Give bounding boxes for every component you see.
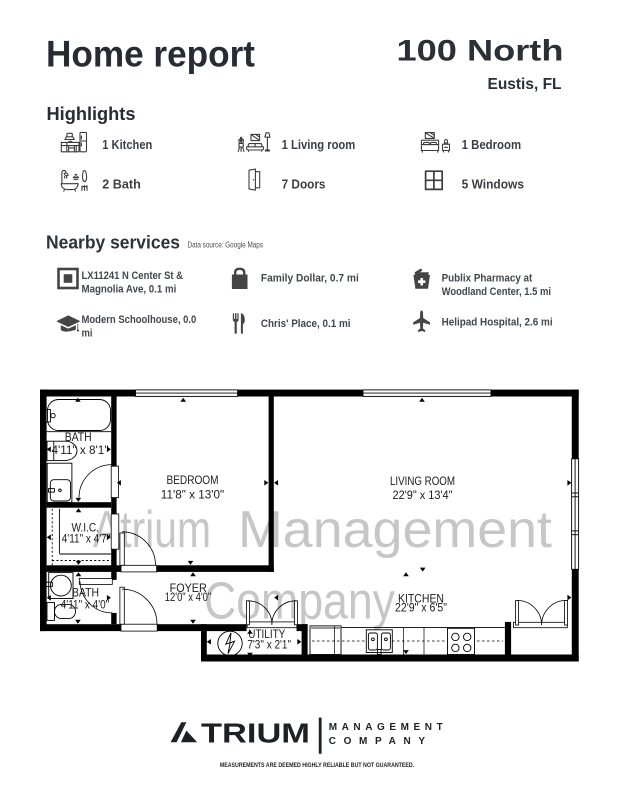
svg-text:4'11" x 8'1": 4'11" x 8'1" [52,445,109,457]
svg-text:2 Bath: 2 Bath [102,176,141,191]
svg-text:Home report: Home report [46,34,255,75]
svg-text:Chris' Place, 0.1 mi: Chris' Place, 0.1 mi [261,318,351,330]
svg-text:Company: Company [204,572,395,630]
svg-text:Nearby services: Nearby services [46,233,180,253]
svg-text:Helipad Hospital, 2.6 mi: Helipad Hospital, 2.6 mi [442,316,553,328]
svg-text:Magnolia Ave, 0.1 mi: Magnolia Ave, 0.1 mi [82,284,177,296]
svg-text:Management: Management [238,501,553,559]
svg-text:1 Living room: 1 Living room [282,137,356,152]
svg-text:5 Windows: 5 Windows [462,176,524,191]
svg-text:11'8" x 13'0": 11'8" x 13'0" [161,490,224,502]
svg-text:mi: mi [82,328,93,340]
svg-text:Woodland Center, 1.5 mi: Woodland Center, 1.5 mi [442,286,551,298]
svg-text:BATH: BATH [65,430,92,444]
svg-text:7 Doors: 7 Doors [282,176,326,191]
svg-text:Highlights: Highlights [47,103,136,124]
svg-text:22'9" x 13'4": 22'9" x 13'4" [393,490,453,502]
svg-text:MEASUREMENTS ARE DEEMED HIGHLY: MEASUREMENTS ARE DEEMED HIGHLY RELIABLE … [220,762,414,769]
svg-text:LX11241 N Center St &: LX11241 N Center St & [82,270,184,282]
svg-text:Modern Schoolhouse, 0.0: Modern Schoolhouse, 0.0 [82,314,197,326]
svg-text:4'11" x 4'0": 4'11" x 4'0" [61,600,110,612]
svg-text:LIVING ROOM: LIVING ROOM [390,474,455,488]
svg-text:Publix Pharmacy at: Publix Pharmacy at [442,272,533,284]
svg-text:100 North: 100 North [397,35,564,68]
svg-text:7'3" x 2'1": 7'3" x 2'1" [247,639,291,651]
svg-text:Family Dollar, 0.7 mi: Family Dollar, 0.7 mi [261,273,359,285]
svg-text:BEDROOM: BEDROOM [167,473,219,487]
svg-text:BATH: BATH [72,586,99,600]
svg-text:4'11" x 4'7": 4'11" x 4'7" [62,533,111,545]
svg-text:W.I.C.: W.I.C. [71,520,99,534]
svg-text:22'9" x 6'5": 22'9" x 6'5" [395,602,447,614]
svg-text:1 Bedroom: 1 Bedroom [462,137,521,152]
svg-text:TRIUM: TRIUM [201,717,310,748]
svg-text:1 Kitchen: 1 Kitchen [102,137,152,152]
svg-text:Data source: Google Maps: Data source: Google Maps [188,241,264,250]
svg-text:Eustis, FL: Eustis, FL [488,76,562,93]
svg-text:12'0" x 4'0": 12'0" x 4'0" [165,592,211,604]
